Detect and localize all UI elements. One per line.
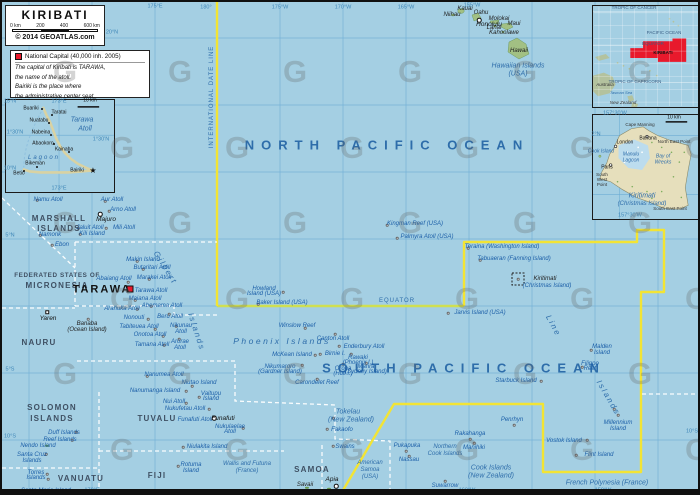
map-shape (593, 73, 616, 97)
map-shape (673, 176, 675, 178)
map-shape (494, 25, 497, 27)
map-shape (673, 21, 675, 23)
map-shape (501, 23, 513, 30)
map-shape (599, 155, 601, 157)
map-shape (656, 75, 658, 77)
map-shape (646, 191, 648, 193)
map-shape (627, 95, 634, 102)
island-dot (61, 489, 64, 492)
map-shape (631, 186, 633, 188)
map-shape (671, 151, 673, 153)
scale-segment (13, 30, 41, 31)
map-shape (649, 70, 651, 72)
map-shape (624, 161, 626, 163)
map-title: KIRIBATI (10, 8, 100, 22)
kiritimati-inset-svg (593, 115, 699, 219)
map-label: Upolu (318, 489, 334, 495)
map-shape (614, 145, 617, 148)
map-shape (508, 38, 529, 59)
scale-segment (69, 30, 97, 31)
map-shape (617, 181, 619, 183)
map-shape (628, 68, 630, 70)
map-shape (646, 135, 649, 138)
map-shape (609, 164, 612, 167)
pacific-locator-inset (592, 5, 700, 108)
scale-tick: 400 (60, 23, 68, 29)
map-shape (472, 13, 481, 21)
copyright: © 2014 GEOATLAS.com (10, 34, 100, 41)
map-shape (683, 151, 685, 153)
legend-box: National Capital (40,000 inh. 2005) The … (10, 50, 150, 98)
legend-note-line: the name of the atoll. (15, 75, 145, 83)
map-shape (679, 161, 681, 163)
map-label: 170°E (84, 488, 99, 494)
map-shape (630, 38, 686, 62)
map-shape (24, 108, 44, 168)
map-shape (623, 65, 625, 67)
map-shape (641, 151, 643, 153)
map-shape (512, 273, 524, 285)
map-shape (24, 108, 93, 173)
map-shape (651, 198, 653, 200)
kiritimati-inset (592, 114, 700, 220)
maritime-boundary-line (2, 198, 75, 268)
map-shape (637, 146, 639, 148)
maritime-boundary-line (75, 306, 217, 315)
scale-segment (41, 30, 69, 31)
pacific-inset-svg (593, 6, 699, 107)
legend-note-line: Bairiki is the place where (15, 84, 145, 92)
tarawa-inset-svg (6, 100, 114, 192)
map-shape (633, 159, 635, 161)
scale-bar (12, 29, 98, 32)
map-label: 150°W (595, 488, 612, 494)
kiribati-boundary-line (339, 230, 664, 495)
map-label: Manua Islands (339, 491, 378, 495)
map-shape (631, 102, 638, 107)
map-shape (451, 14, 454, 16)
map-shape (626, 151, 628, 153)
map-canvas: KIRIBATI 0 km 200 400 600 km © 2014 GEOA… (0, 0, 700, 495)
island-dot (349, 492, 352, 495)
map-shape (490, 20, 499, 24)
legend-note-line: the administrative center seat. (15, 94, 145, 102)
map-shape (458, 9, 464, 14)
legend-capital-label: National Capital (40,000 inh. 2005) (25, 53, 121, 60)
island-dot (341, 490, 345, 492)
red-square-icon (15, 53, 22, 60)
map-shape (661, 191, 663, 193)
map-shape (595, 54, 610, 61)
scale-tick: 600 km (84, 23, 100, 29)
map-shape (502, 31, 505, 33)
map-shape (681, 197, 683, 199)
legend-note-line: The capital of Kiribati is TARAWA, (15, 65, 145, 73)
tarawa-atoll-inset (5, 99, 115, 193)
map-shape (617, 62, 619, 64)
map-shape (661, 147, 663, 149)
map-shape (651, 142, 653, 144)
map-label: 160°W (459, 488, 476, 494)
scale-tick: 200 (36, 23, 44, 29)
scale-tick: 0 km (10, 23, 21, 29)
map-title-box: KIRIBATI 0 km 200 400 600 km © 2014 GEOA… (5, 5, 105, 46)
map-shape (600, 127, 691, 209)
